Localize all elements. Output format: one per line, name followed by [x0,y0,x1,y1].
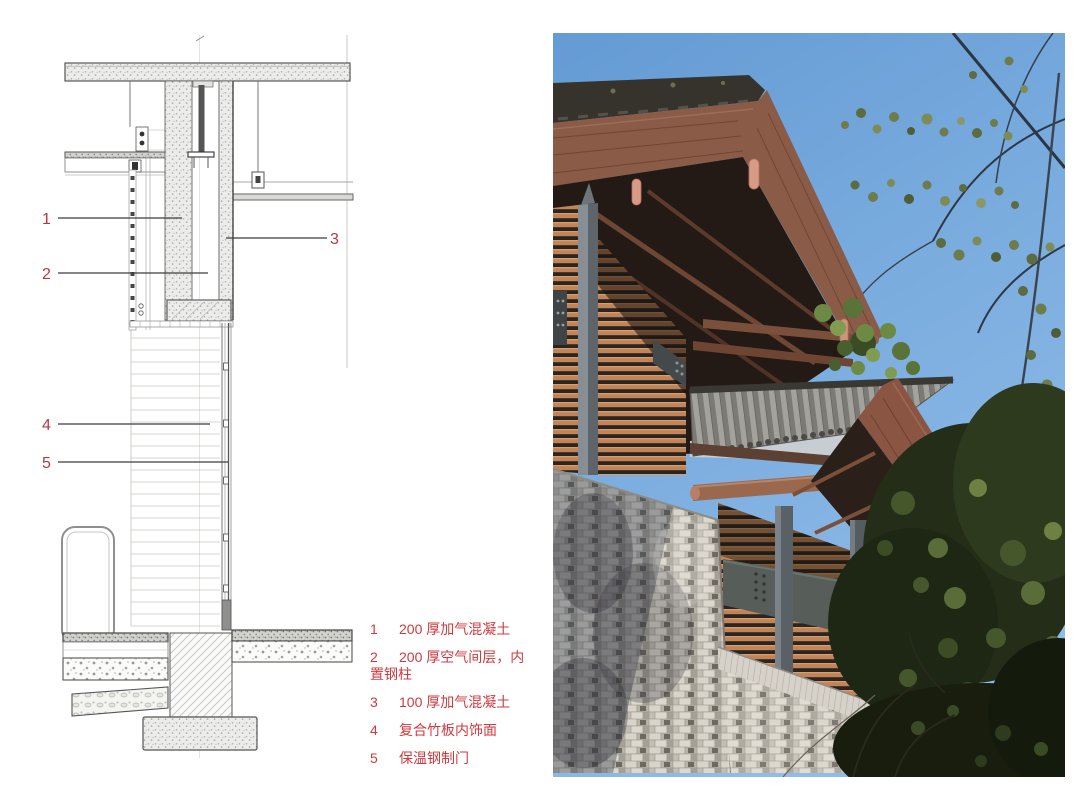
foundation-pier [170,633,232,717]
building-photo [553,33,1065,777]
legend-num: 1 [370,621,399,638]
suspended-ceiling [233,81,353,200]
footing [143,717,257,750]
legend-num: 2 [370,649,399,666]
steel-door [222,323,231,630]
legend-item-3: 3100 厚加气混凝土 [370,694,530,711]
legend-item-2: 2200 厚空气间层，内置钢柱 [370,649,530,683]
legend-num: 5 [370,750,399,767]
floor-assembly-left [63,633,168,716]
callout-2: 2 [42,266,51,283]
legend-num: 3 [370,694,399,711]
architectural-detail-sheet: 1 2 3 4 5 1200 厚加气混凝土 2200 厚空气间层，内置钢柱 31… [0,0,1080,802]
callout-leader-lines [58,218,327,462]
legend-item-4: 4复合竹板内饰面 [370,722,530,739]
callout-3: 3 [330,231,339,248]
callout-1: 1 [42,211,51,228]
legend: 1200 厚加气混凝土 2200 厚空气间层，内置钢柱 3100 厚加气混凝土 … [370,621,530,778]
wall-assembly [129,81,233,330]
door-lintel [130,300,233,327]
bamboo-finish-panel [131,330,220,626]
legend-num: 4 [370,722,399,739]
legend-text: 100 厚加气混凝土 [399,694,510,710]
callout-5: 5 [42,455,51,472]
eave-peg [632,179,641,205]
top-slab [65,63,350,81]
bolted-plate [553,291,567,345]
handrail [62,527,114,648]
legend-item-1: 1200 厚加气混凝土 [370,621,530,638]
construction-detail-drawing: 1 2 3 4 5 [0,0,380,802]
callout-4: 4 [42,417,51,434]
floor-assembly-right [232,630,352,662]
legend-item-5: 5保温钢制门 [370,750,530,767]
legend-text: 200 厚加气混凝土 [399,621,510,637]
legend-text: 保温钢制门 [399,750,469,766]
legend-text: 复合竹板内饰面 [399,722,497,738]
eave-peg [749,159,759,189]
